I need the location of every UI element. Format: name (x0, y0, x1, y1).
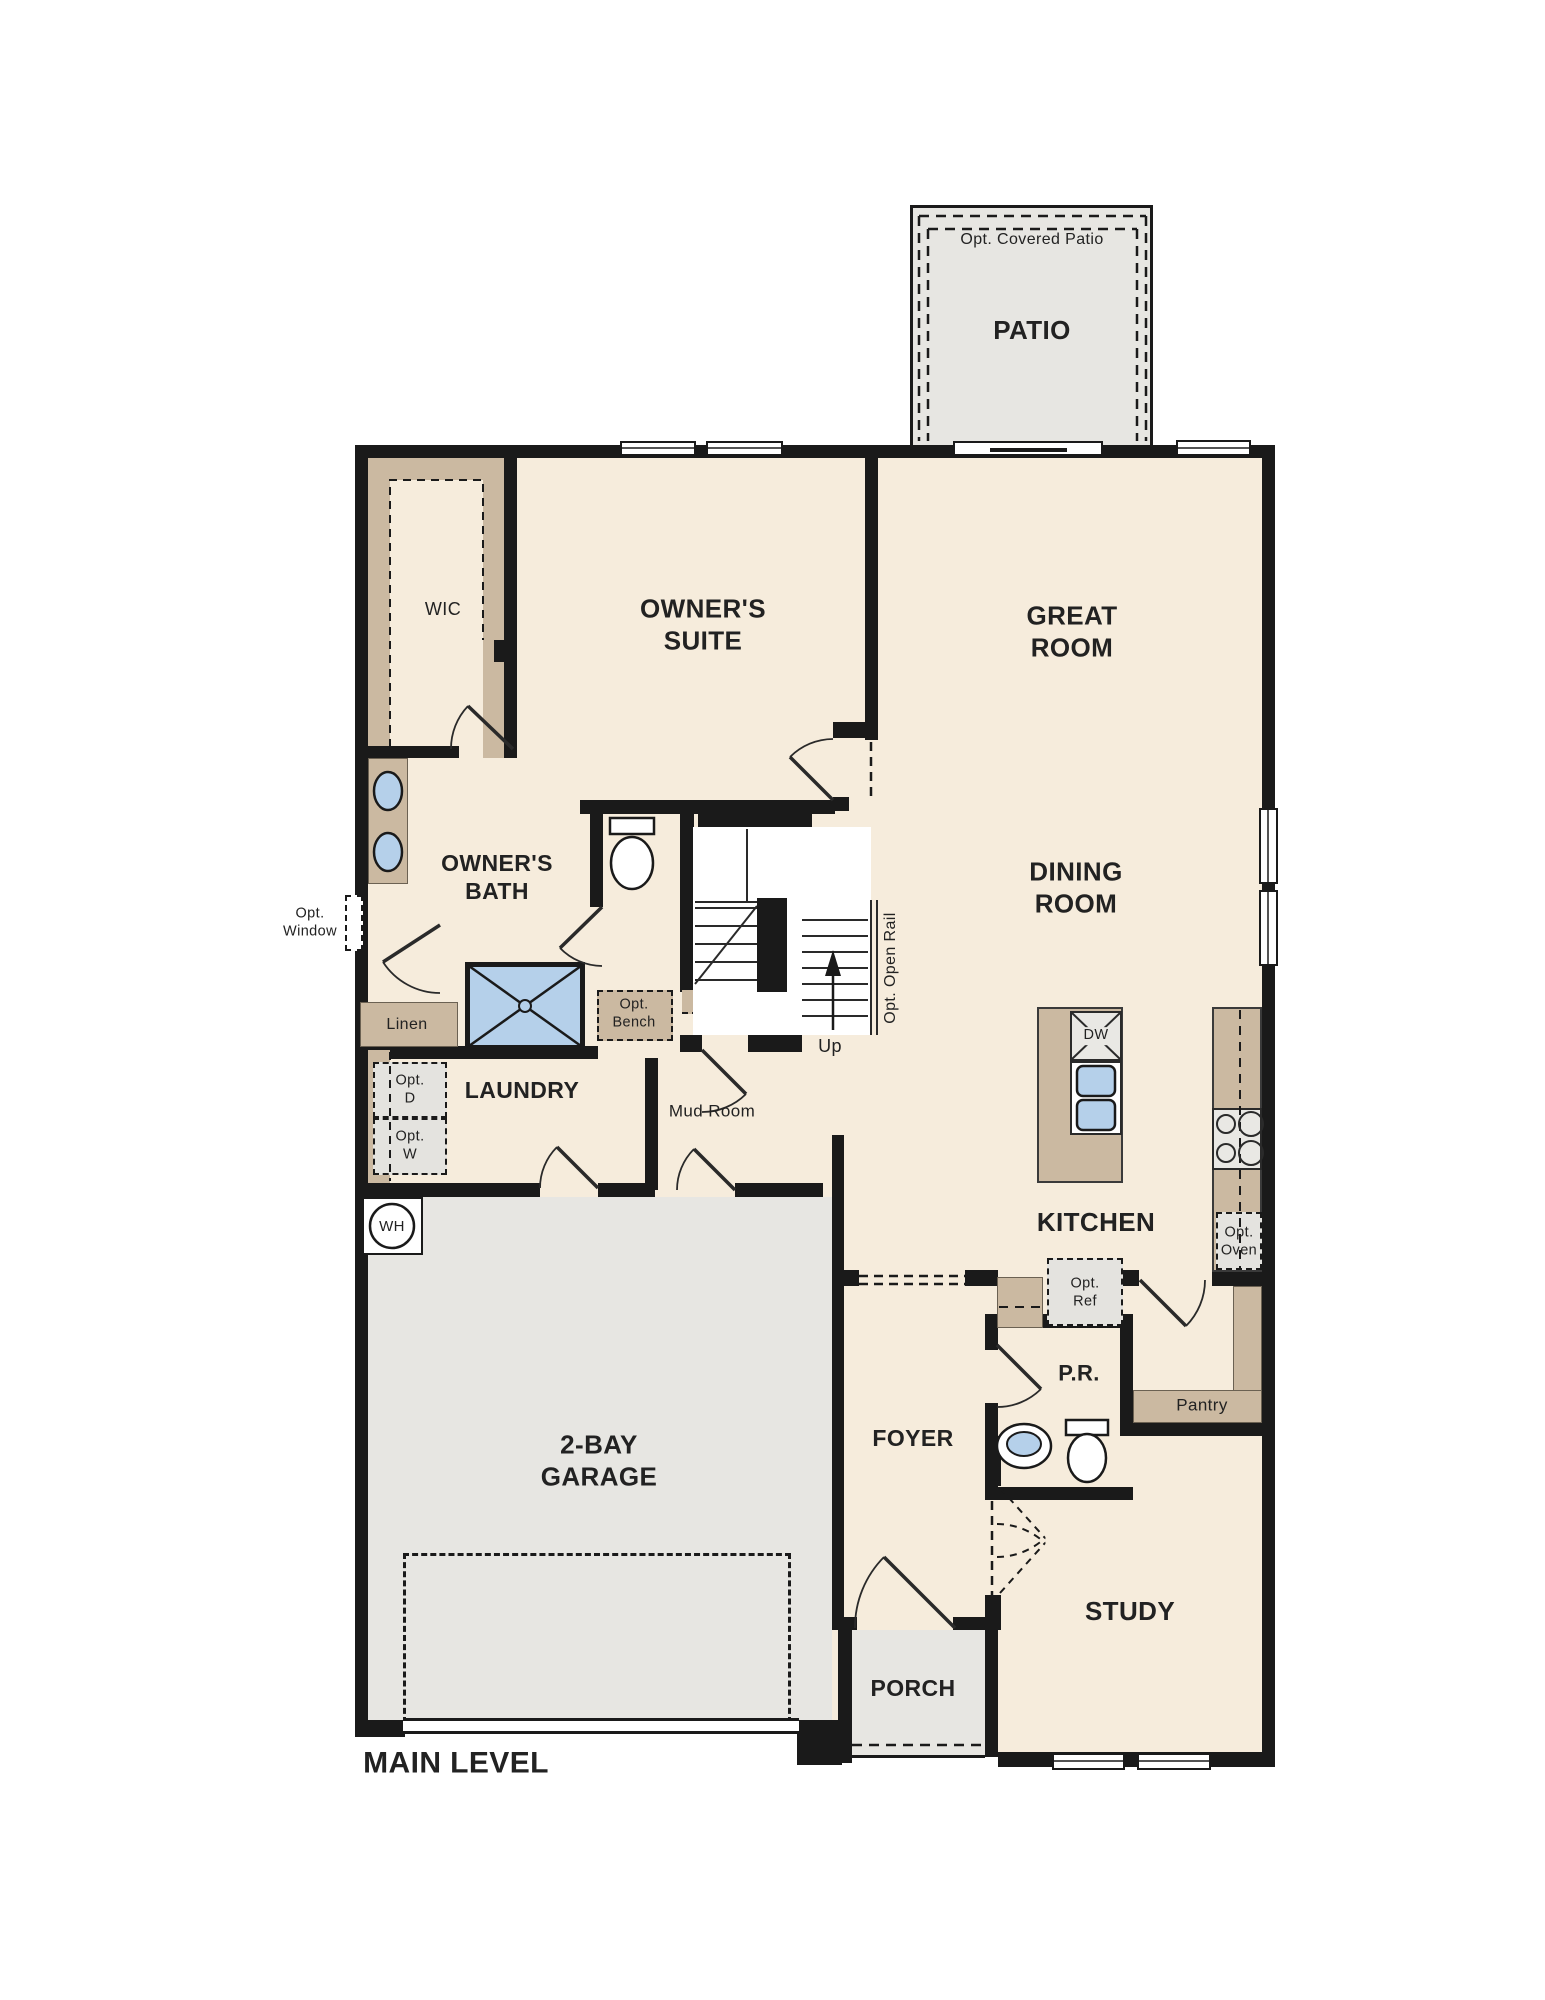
label-wic: WIC (425, 599, 461, 621)
label-linen: Linen (386, 1015, 427, 1035)
wall-stub-suite-door-top (833, 722, 878, 738)
label-mud-room: Mud Room (669, 1102, 755, 1123)
window-great-right-1 (1259, 808, 1278, 884)
label-opt-covered-patio: Opt. Covered Patio (960, 230, 1103, 250)
label-laundry: LAUNDRY (465, 1076, 579, 1104)
garage-door (403, 1718, 799, 1734)
label-pantry: Pantry (1176, 1396, 1228, 1417)
label-opt-washer: Opt. W (396, 1128, 425, 1163)
label-dishwasher: DW (1082, 1027, 1111, 1045)
wall-pr-bottom (985, 1487, 1133, 1500)
garage-opt-outline (403, 1553, 791, 1723)
label-owners-suite: OWNER'S SUITE (640, 593, 766, 656)
window-suite-1 (620, 441, 696, 456)
wall-pantry-top-stub (1123, 1270, 1139, 1286)
label-foyer: FOYER (872, 1424, 953, 1452)
wall-mud-bottom-a (355, 1183, 540, 1197)
wall-mud-bottom-b (598, 1183, 655, 1197)
label-kitchen: KITCHEN (1037, 1207, 1155, 1239)
window-great-right-2 (1259, 890, 1278, 966)
wall-top (355, 445, 1275, 458)
wall-pantry-bottom (1120, 1423, 1275, 1436)
wall-kitchen-foyer-b (965, 1270, 998, 1286)
label-owners-bath: OWNER'S BATH (441, 849, 553, 905)
wall-garage-right (832, 1135, 844, 1630)
wall-stair-top (698, 812, 812, 828)
wall-suite-great (865, 445, 878, 740)
label-opt-dryer: Opt. D (396, 1072, 425, 1107)
wall-right (1262, 445, 1275, 1767)
label-dining-room: DINING ROOM (1029, 856, 1122, 919)
floor-plan: Opt. Covered Patio PATIO WIC OWNER'S SUI… (0, 0, 1545, 2000)
wall-stair-left (680, 812, 694, 992)
wall-left (355, 445, 368, 1737)
window-suite-2 (706, 441, 783, 456)
label-opt-open-rail: Opt. Open Rail (881, 912, 901, 1023)
wall-stair-stub-a (680, 1035, 702, 1052)
wall-stair-stub-b (748, 1035, 802, 1052)
label-opt-ref: Opt. Ref (1071, 1275, 1100, 1310)
wall-wic-bottom (355, 746, 459, 758)
wall-stub-suite-door-bot (833, 797, 849, 811)
island-sink-box (1070, 1061, 1122, 1135)
understair-shelf (682, 990, 758, 1014)
kitchen-counter-return (997, 1277, 1043, 1328)
label-porch: PORCH (870, 1674, 955, 1702)
wall-porch-right (985, 1617, 998, 1757)
wall-garage-bl (355, 1720, 405, 1737)
wall-kitchen-foyer-a (838, 1270, 859, 1286)
wall-study-left-a (985, 1436, 1001, 1486)
wall-laundry-right (645, 1058, 658, 1190)
wall-garage-br (797, 1720, 842, 1765)
wall-mud-bottom-c (735, 1183, 823, 1197)
label-water-heater: WH (379, 1218, 405, 1236)
wall-wic-right (504, 445, 517, 758)
opt-window (345, 895, 363, 951)
label-garage: 2-BAY GARAGE (541, 1429, 658, 1492)
wall-wc-left (590, 812, 603, 907)
cooktop (1212, 1108, 1262, 1170)
shower (465, 962, 585, 1050)
wall-pr-left-a (985, 1328, 998, 1350)
patio-sliding-door (953, 441, 1103, 456)
label-up: Up (818, 1036, 842, 1058)
label-study: STUDY (1085, 1596, 1175, 1628)
label-opt-oven: Opt. Oven (1221, 1224, 1257, 1259)
window-study-1 (1052, 1753, 1125, 1770)
label-opt-window: Opt. Window (283, 905, 337, 940)
wall-pantry-left (1120, 1314, 1133, 1436)
wall-wic-jamb (494, 640, 517, 662)
label-patio: PATIO (993, 315, 1071, 347)
label-great-room: GREAT ROOM (1026, 600, 1117, 663)
wall-pantry-top (1212, 1270, 1275, 1286)
label-main-level: MAIN LEVEL (363, 1746, 549, 1783)
label-opt-bench: Opt. Bench (612, 996, 655, 1031)
label-powder-room: P.R. (1058, 1361, 1100, 1388)
window-study-2 (1137, 1753, 1211, 1770)
bath-vanity (368, 758, 408, 884)
window-great-top (1176, 440, 1251, 456)
